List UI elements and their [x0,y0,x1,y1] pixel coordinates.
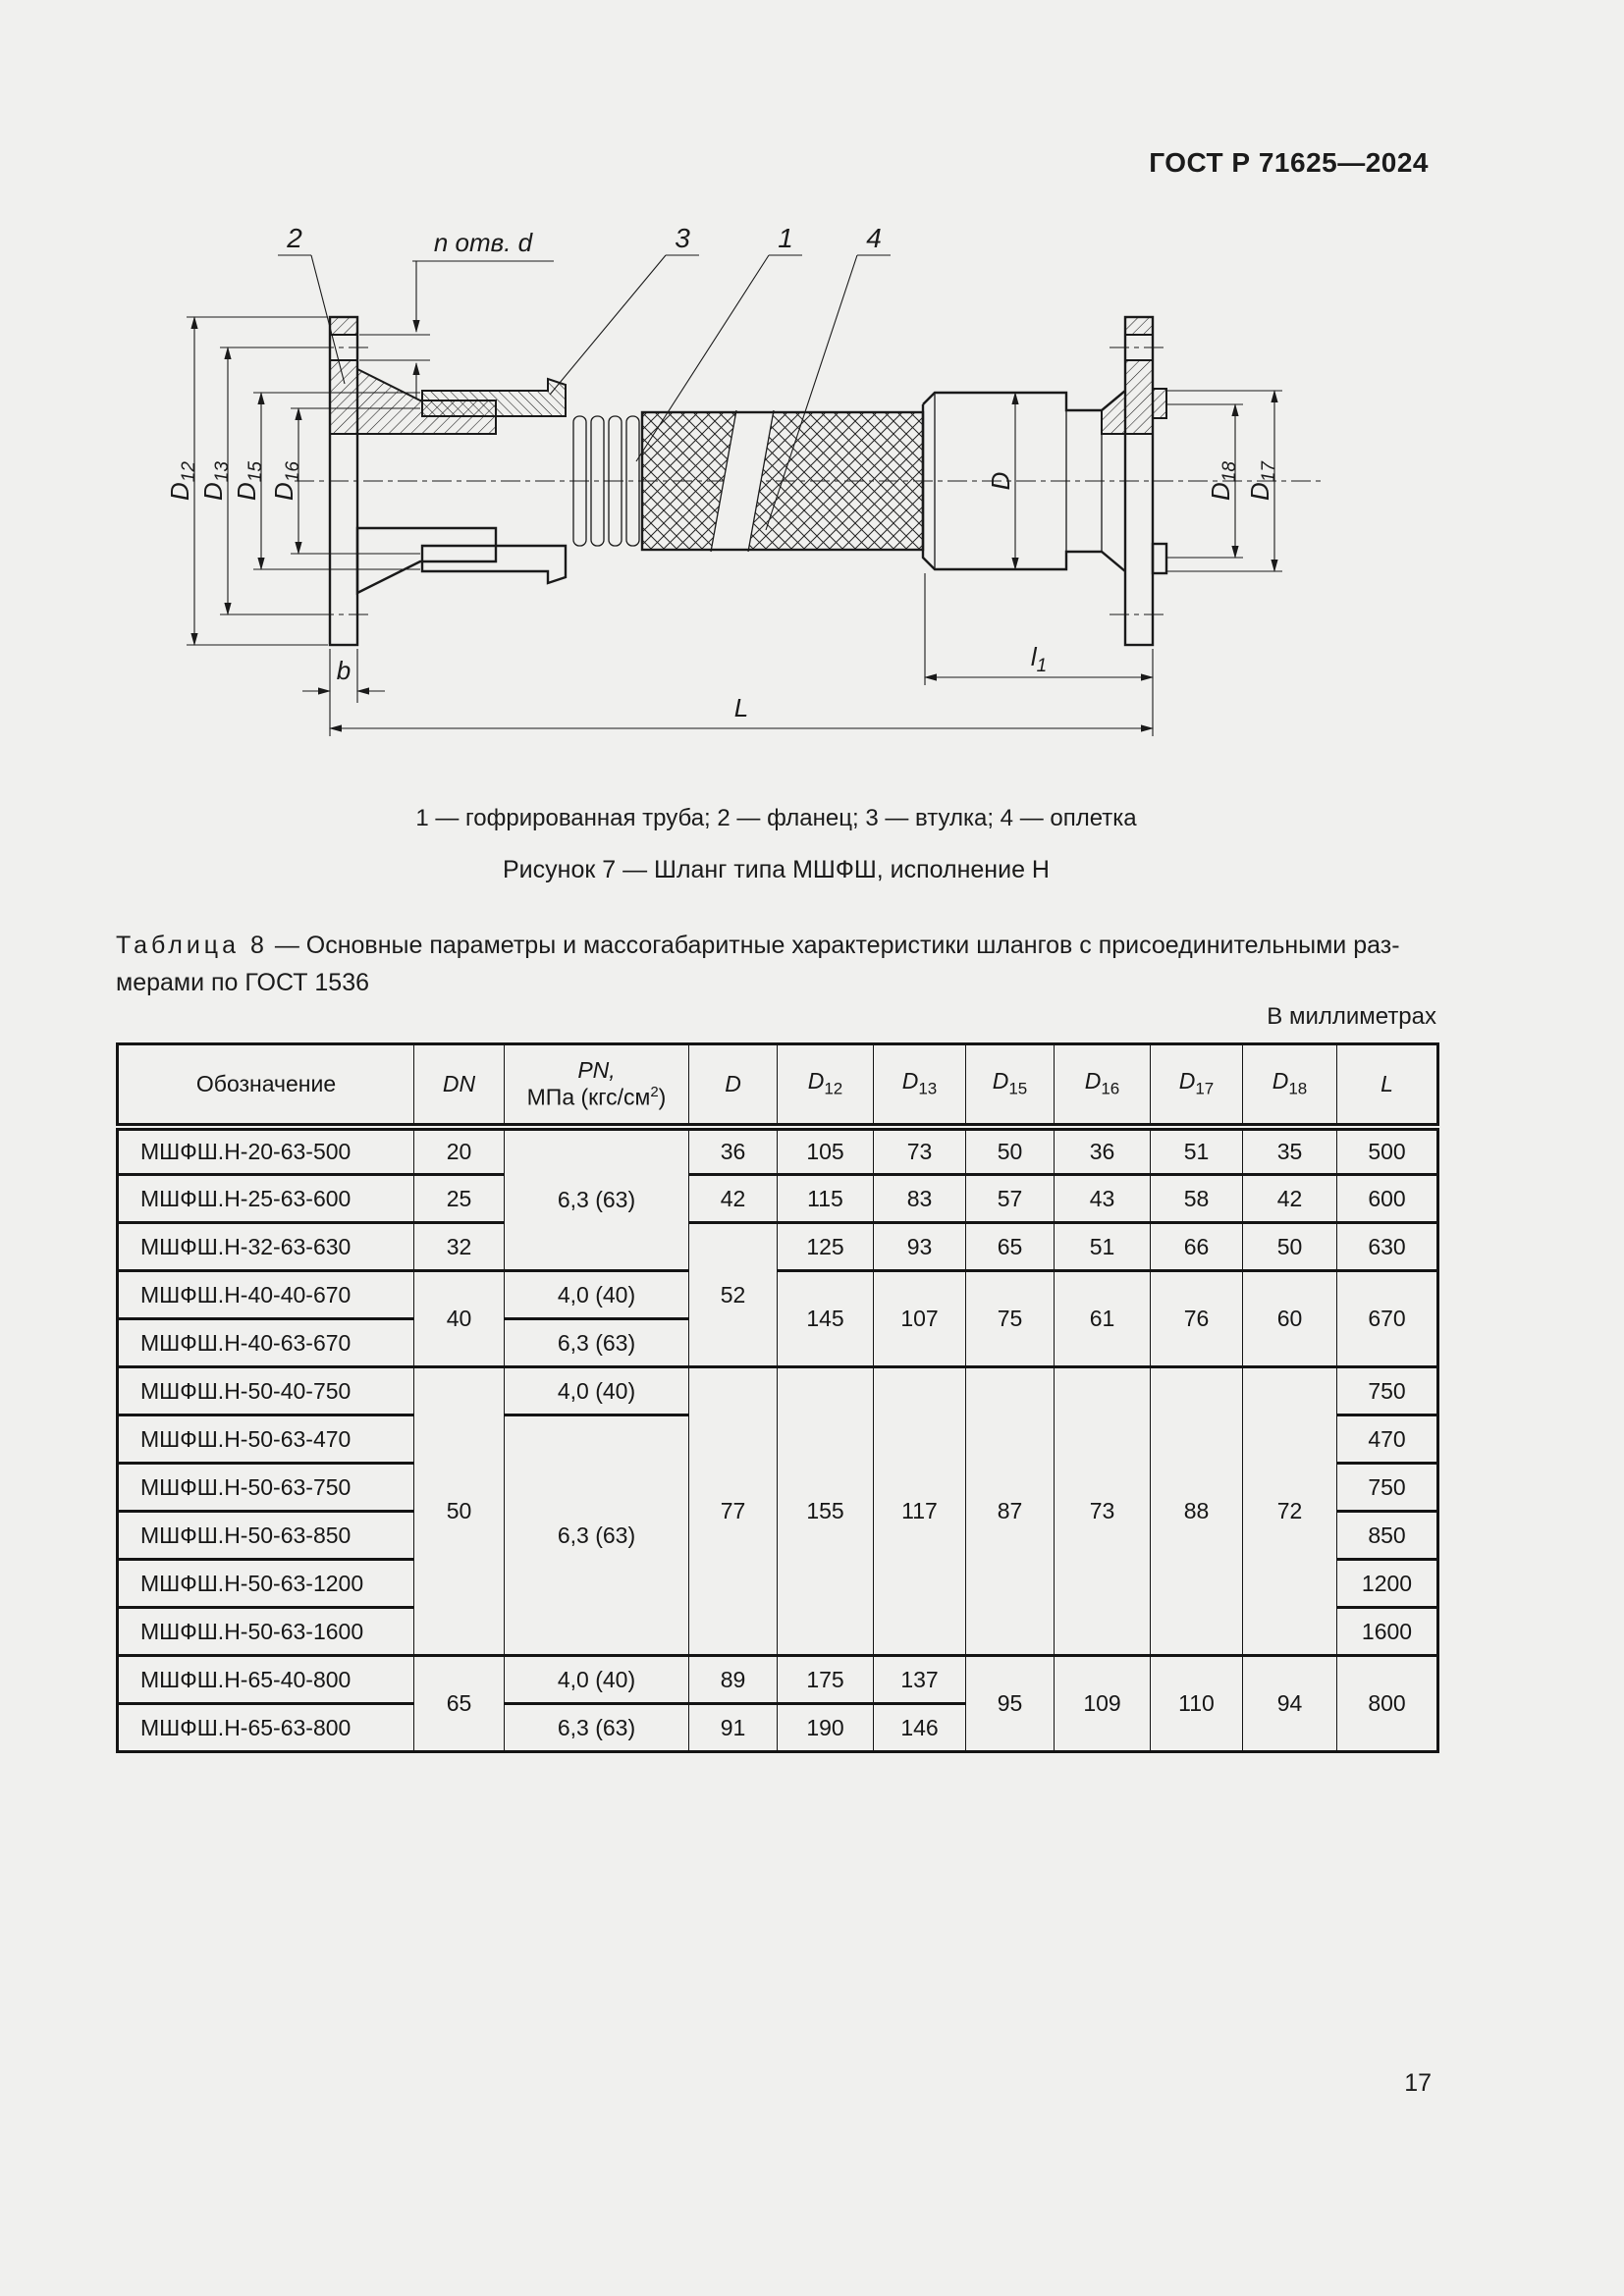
figure-title: Рисунок 7 — Шланг типа МШФШ, исполнение … [116,856,1436,884]
cell-d12: 175 [778,1656,874,1704]
table-title-line1: Таблица 8 — Основные параметры и массога… [116,928,1436,965]
cell-l: 850 [1337,1512,1438,1560]
cell-d17: 110 [1151,1656,1243,1752]
cell-l: 470 [1337,1415,1438,1464]
cell-d17: 66 [1151,1223,1243,1271]
dim-label-L: L [734,693,748,722]
col-header-d13: D13 [874,1044,966,1127]
cell-designation: МШФШ.Н-40-63-670 [118,1319,414,1367]
cell-l: 1600 [1337,1608,1438,1656]
col-header-d12: D12 [778,1044,874,1127]
cell-designation: МШФШ.Н-50-63-1600 [118,1608,414,1656]
dim-label-b: b [337,656,351,685]
cell-l: 750 [1337,1464,1438,1512]
cell-d17: 58 [1151,1175,1243,1223]
cell-dn: 20 [414,1127,505,1175]
cell-d17: 51 [1151,1127,1243,1175]
cell-designation: МШФШ.Н-50-63-1200 [118,1560,414,1608]
holes-note: n отв. d [434,228,534,257]
table-row: МШФШ.Н-25-63-600 25 42 115 83 57 43 58 4… [118,1175,1438,1223]
col-header-pn: PN, МПа (кгс/см2) [505,1044,689,1127]
cell-d12: 115 [778,1175,874,1223]
cell-pn: 4,0 (40) [505,1367,689,1415]
table-number-label: Таблица 8 [116,932,268,959]
cell-d18: 50 [1243,1223,1337,1271]
cell-d: 77 [689,1367,778,1656]
cell-pn: 4,0 (40) [505,1271,689,1319]
cell-d12: 125 [778,1223,874,1271]
cell-d16: 61 [1055,1271,1151,1367]
cell-d: 91 [689,1704,778,1752]
table-row: МШФШ.Н-40-40-670 40 4,0 (40) 145 107 75 … [118,1271,1438,1319]
document-page: ГОСТ Р 71625—2024 [0,0,1624,2296]
cell-d15: 65 [966,1223,1055,1271]
cell-d15: 75 [966,1271,1055,1367]
dim-label-d18: D18 [1206,461,1240,501]
table-8: Обозначение DN PN, МПа (кгс/см2) D D12 D… [116,1042,1439,1753]
bottom-dimensions: b l1 L [302,573,1153,736]
table-row: МШФШ.Н-20-63-500 20 6,3 (63) 36 105 73 5… [118,1127,1438,1175]
cell-l: 800 [1337,1656,1438,1752]
table-title: Таблица 8 — Основные параметры и массога… [116,928,1436,1001]
cell-designation: МШФШ.Н-50-63-850 [118,1512,414,1560]
cell-d16: 73 [1055,1367,1151,1656]
dim-label-d16: D16 [269,461,303,501]
page-number: 17 [0,2069,1432,2098]
units-note: В миллиметрах [116,1003,1436,1031]
table-row: МШФШ.Н-65-40-800 65 4,0 (40) 89 175 137 … [118,1656,1438,1704]
cell-d13: 137 [874,1656,966,1704]
cell-d18: 72 [1243,1367,1337,1656]
cell-d12: 190 [778,1704,874,1752]
cell-designation: МШФШ.Н-40-40-670 [118,1271,414,1319]
cell-d12: 105 [778,1127,874,1175]
col-header-d18: D18 [1243,1044,1337,1127]
dim-label-d: D [986,472,1015,491]
cell-l: 600 [1337,1175,1438,1223]
cell-designation: МШФШ.Н-50-63-750 [118,1464,414,1512]
cell-l: 500 [1337,1127,1438,1175]
cell-d18: 42 [1243,1175,1337,1223]
cell-d15: 87 [966,1367,1055,1656]
col-header-l: L [1337,1044,1438,1127]
part-label-1: 1 [778,223,793,253]
col-header-d16: D16 [1055,1044,1151,1127]
dim-label-d13: D13 [198,461,233,501]
cell-d18: 35 [1243,1127,1337,1175]
cell-d17: 88 [1151,1367,1243,1656]
cell-designation: МШФШ.Н-50-40-750 [118,1367,414,1415]
table-row: МШФШ.Н-50-40-750 50 4,0 (40) 77 155 117 … [118,1367,1438,1415]
cell-dn: 50 [414,1367,505,1656]
dim-label-d15: D15 [232,461,266,501]
cell-d15: 57 [966,1175,1055,1223]
hose-technical-drawing: 2 3 1 4 n отв. d D12 [0,0,1624,775]
table-row: МШФШ.Н-32-63-630 32 52 125 93 65 51 66 5… [118,1223,1438,1271]
figure-parts-caption: 1 — гофрированная труба; 2 — фланец; 3 —… [116,805,1436,832]
cell-d13: 107 [874,1271,966,1367]
cell-l: 1200 [1337,1560,1438,1608]
part-label-3: 3 [675,223,690,253]
cell-dn: 32 [414,1223,505,1271]
cell-d13: 146 [874,1704,966,1752]
cell-l: 670 [1337,1271,1438,1367]
cell-dn: 40 [414,1271,505,1367]
cell-d18: 60 [1243,1271,1337,1367]
cell-d12: 145 [778,1271,874,1367]
dim-label-d17: D17 [1245,460,1279,501]
cell-dn: 65 [414,1656,505,1752]
cell-d18: 94 [1243,1656,1337,1752]
cell-d15: 50 [966,1127,1055,1175]
part-label-4: 4 [866,223,882,253]
cell-d12: 155 [778,1367,874,1656]
part-label-2: 2 [286,223,302,253]
cell-designation: МШФШ.Н-65-40-800 [118,1656,414,1704]
cell-d: 52 [689,1223,778,1367]
cell-designation: МШФШ.Н-32-63-630 [118,1223,414,1271]
cell-pn: 6,3 (63) [505,1319,689,1367]
col-header-d15: D15 [966,1044,1055,1127]
cell-d16: 43 [1055,1175,1151,1223]
cell-d13: 93 [874,1223,966,1271]
col-header-d17: D17 [1151,1044,1243,1127]
cell-pn: 6,3 (63) [505,1127,689,1271]
cell-d: 42 [689,1175,778,1223]
cell-d13: 117 [874,1367,966,1656]
col-header-dn: DN [414,1044,505,1127]
cell-d: 89 [689,1656,778,1704]
cell-pn: 6,3 (63) [505,1704,689,1752]
cell-l: 630 [1337,1223,1438,1271]
holes-callout: n отв. d [359,228,554,399]
dim-label-d12: D12 [165,461,199,501]
cell-designation: МШФШ.Н-20-63-500 [118,1127,414,1175]
cell-d13: 83 [874,1175,966,1223]
cell-designation: МШФШ.Н-25-63-600 [118,1175,414,1223]
cell-designation: МШФШ.Н-50-63-470 [118,1415,414,1464]
cell-d17: 76 [1151,1271,1243,1367]
cell-d15: 95 [966,1656,1055,1752]
cell-d16: 36 [1055,1127,1151,1175]
col-header-designation: Обозначение [118,1044,414,1127]
header-row: Обозначение DN PN, МПа (кгс/см2) D D12 D… [118,1044,1438,1127]
cell-d16: 109 [1055,1656,1151,1752]
cell-pn: 6,3 (63) [505,1415,689,1656]
cell-d: 36 [689,1127,778,1175]
cell-dn: 25 [414,1175,505,1223]
cell-pn: 4,0 (40) [505,1656,689,1704]
dim-label-l1: l1 [1031,642,1047,676]
cell-l: 750 [1337,1367,1438,1415]
cell-d16: 51 [1055,1223,1151,1271]
table-title-line2: мерами по ГОСТ 1536 [116,965,1436,1002]
cell-d13: 73 [874,1127,966,1175]
col-header-d: D [689,1044,778,1127]
cell-designation: МШФШ.Н-65-63-800 [118,1704,414,1752]
